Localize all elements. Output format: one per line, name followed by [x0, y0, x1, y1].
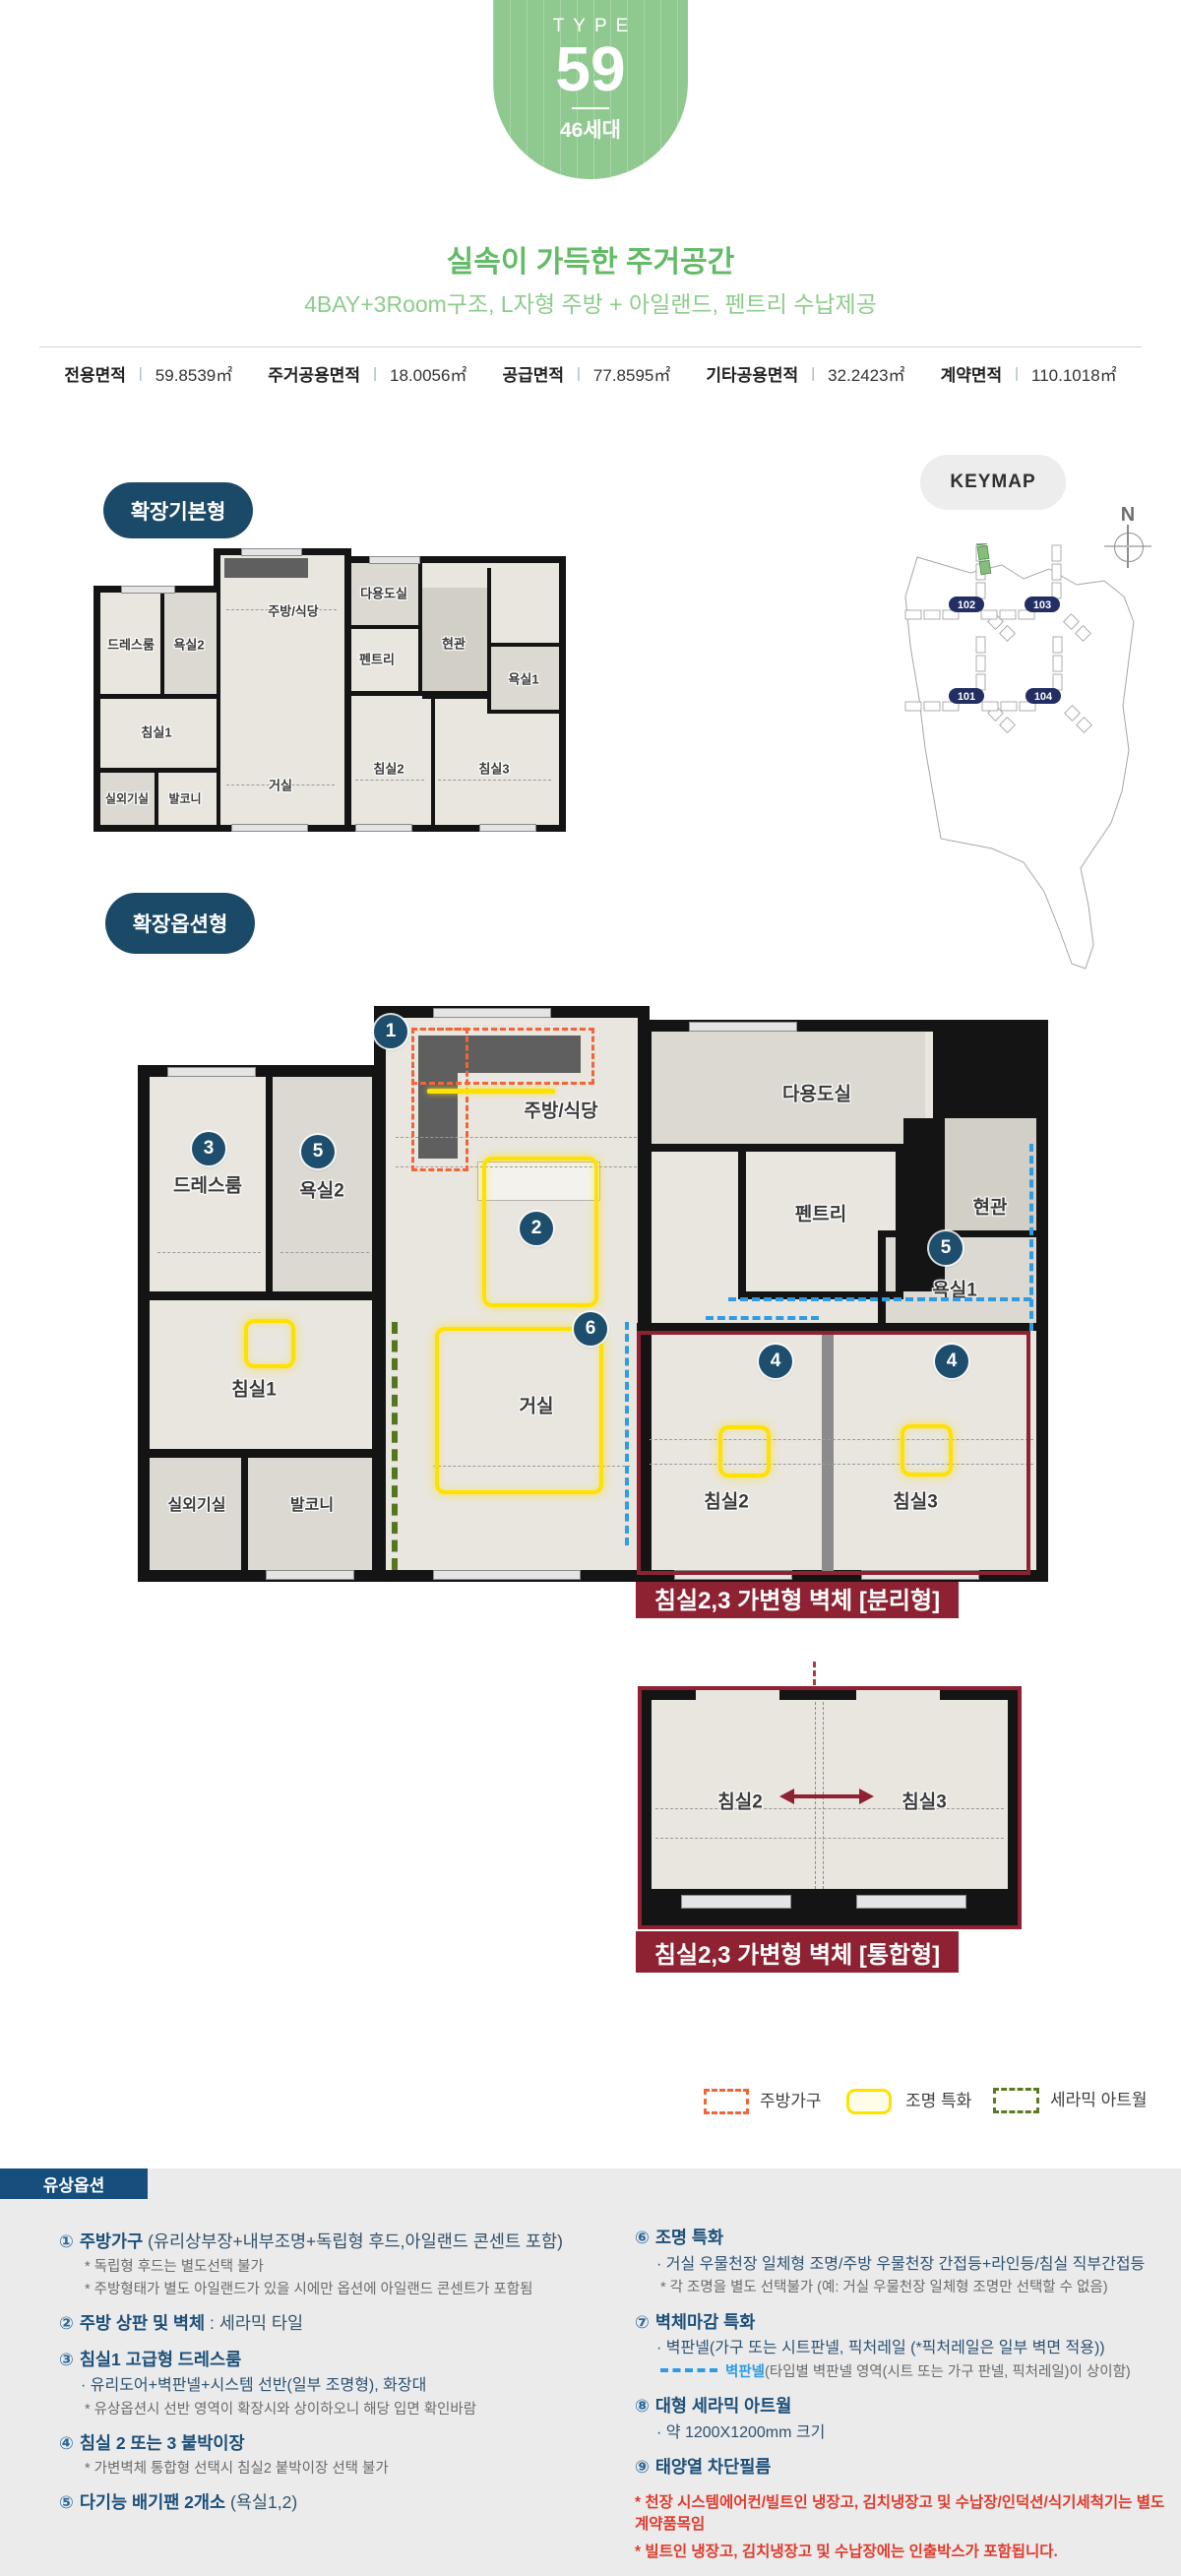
- building: [1001, 702, 1017, 711]
- building: [975, 543, 987, 545]
- wall: [652, 1144, 933, 1152]
- building: [924, 702, 940, 711]
- wall: [937, 1114, 945, 1237]
- block-pill-label: 103: [1033, 599, 1051, 611]
- room-label-bed2: 침실2: [717, 1788, 763, 1814]
- option-item-title: 침실1 고급형 드레스룸: [80, 2350, 241, 2369]
- wall: [160, 593, 164, 696]
- area-value: 59.8539㎡: [155, 361, 232, 386]
- area-value: 110.1018㎡: [1031, 361, 1117, 386]
- floor: [856, 1690, 940, 1702]
- area-label: 공급면적: [502, 361, 564, 386]
- marker-5: 5: [929, 1231, 963, 1265]
- option-item: ③침실1 고급형 드레스룸 · 유리도어+벽판넬+시스템 선반(일부 조명형),…: [59, 2349, 610, 2420]
- buildings-layer: [905, 543, 1091, 732]
- building: [1000, 626, 1016, 642]
- wall: [738, 1152, 746, 1299]
- divider-line: [39, 346, 1142, 347]
- option-item-suffix: : 세라믹 타일: [210, 2313, 303, 2333]
- window: [479, 824, 536, 832]
- wall: [155, 773, 158, 825]
- option-item-suffix: (유리상부장+내부조명+독립형 후드,아일랜드 콘센트 포함): [148, 2231, 563, 2251]
- option-item-heading: ①주방가구 (유리상부장+내부조명+독립형 후드,아일랜드 콘센트 포함): [59, 2230, 610, 2254]
- area-info-row: 전용면적 | 59.8539㎡ 주거공용면적 | 18.0056㎡ 공급면적 |…: [0, 361, 1181, 386]
- merge-arrow-head: [779, 1789, 794, 1804]
- merge-arrow-icon: [777, 1785, 876, 1808]
- legend-kitchen-furniture-swatch: [704, 2089, 749, 2114]
- site-map-svg: 102 103 101 104: [876, 543, 1171, 976]
- variable-wall-outline: [637, 1331, 1030, 1575]
- wall-panel-line: [1029, 1144, 1033, 1331]
- marker-2: 2: [520, 1212, 553, 1245]
- type-divider: [572, 107, 609, 109]
- block-pill-103: 103: [1025, 597, 1060, 612]
- option-item-number: ②: [59, 2313, 74, 2333]
- room-label-outdoor-unit: 실외기실: [105, 790, 149, 807]
- building: [981, 610, 997, 619]
- window: [167, 1067, 256, 1077]
- room-label-pantry: 펜트리: [359, 650, 395, 668]
- building: [1064, 614, 1080, 630]
- room-label-bed1: 침실1: [231, 1375, 277, 1402]
- variable-wall-caption-separate: 침실2,3 가변형 벽체 [분리형]: [636, 1577, 959, 1618]
- building: [924, 610, 940, 619]
- wall: [487, 568, 491, 714]
- window: [231, 824, 308, 832]
- contract-red-note: * 빌트인 냉장고, 김치냉장고 및 수납장에는 인출박스가 포함됩니다.: [635, 2542, 1166, 2563]
- room-label-outdoor-unit: 실외기실: [168, 1491, 226, 1515]
- wall-panel-label: 벽판넬: [725, 2364, 765, 2380]
- page-subtitle: 4BAY+3Room구조, L자형 주방 + 아일랜드, 펜트리 수납제공: [0, 285, 1181, 319]
- option-item-heading: ⑧대형 세라믹 아트월: [635, 2395, 1166, 2419]
- option-item-bullet: · 벽판넬(가구 또는 시트판넬, 픽처레일 (*픽처레일은 일부 벽면 적용)…: [656, 2338, 1166, 2359]
- ceiling-dash-line: [157, 1252, 261, 1253]
- room-label-kitchen: 주방/식당: [524, 1097, 597, 1123]
- option-item-heading: ⑦벽체마감 특화: [635, 2311, 1166, 2335]
- option-item-note: * 각 조명을 별도 선택불가 (예: 거실 우물천장 일체형 조명만 선택할 …: [660, 2278, 1166, 2297]
- option-item-suffix: (욕실1,2): [230, 2492, 297, 2512]
- option-item: ④침실 2 또는 3 붙박이장 * 가변벽체 통합형 선택시 침실2 붙박이장 …: [59, 2432, 610, 2479]
- building: [1052, 583, 1061, 598]
- wall: [491, 710, 559, 714]
- window: [369, 556, 420, 564]
- option-item-bullet: · 거실 우물천장 일체형 조명/주방 우물천장 간접등+라인등/침실 직부간접…: [656, 2254, 1166, 2276]
- area-value: 32.2423㎡: [828, 361, 904, 386]
- option-item-bullet: · 약 1200X1200mm 크기: [656, 2422, 1166, 2444]
- marker-6: 6: [574, 1312, 607, 1346]
- option-item-title: 침실 2 또는 3 붙박이장: [80, 2433, 245, 2453]
- block-pill-102: 102: [949, 597, 984, 612]
- building: [905, 610, 921, 619]
- building: [1077, 718, 1092, 733]
- building: [1052, 545, 1061, 561]
- window: [856, 1895, 966, 1909]
- legend-lighting-label: 조명 특화: [905, 2089, 971, 2114]
- option-item-title: 다기능 배기팬 2개소: [80, 2492, 225, 2512]
- wall: [100, 694, 217, 699]
- area-separator: |: [1015, 365, 1019, 382]
- building: [1053, 674, 1062, 690]
- wall-panel-line: [706, 1316, 819, 1320]
- building: [1076, 626, 1091, 642]
- area-item: 전용면적 | 59.8539㎡: [64, 361, 232, 386]
- ceiling-dash-line: [655, 1838, 1004, 1839]
- paid-options-left-column: ①주방가구 (유리상부장+내부조명+독립형 후드,아일랜드 콘센트 포함) * …: [59, 2230, 610, 2528]
- option-item: ⑨태양열 차단필름: [635, 2456, 1166, 2480]
- wall: [878, 1230, 886, 1329]
- page-title: 실속이 가득한 주거공간: [0, 237, 1181, 281]
- room-label-utility: 다용도실: [360, 584, 407, 602]
- site-keymap: 102 103 101 104: [876, 543, 1171, 976]
- paid-options-title: 유상옵션: [0, 2168, 148, 2199]
- type-units: 46세대: [493, 114, 688, 144]
- option-item-number: ⑨: [635, 2457, 650, 2477]
- option-item-number: ④: [59, 2433, 74, 2453]
- room-label-balcony: 발코니: [168, 790, 201, 807]
- building: [982, 702, 998, 711]
- wall: [418, 563, 422, 695]
- ceiling-dash-line: [438, 780, 551, 781]
- wall: [431, 699, 435, 825]
- merge-arrow-head: [859, 1789, 874, 1804]
- room-label-balcony: 발코니: [290, 1491, 334, 1515]
- option-item-title: 대형 세라믹 아트월: [655, 2396, 792, 2416]
- window: [241, 548, 302, 556]
- window: [681, 1895, 791, 1909]
- marker-5: 5: [301, 1135, 335, 1168]
- option-item-heading: ⑤다기능 배기팬 2개소 (욕실1,2): [59, 2491, 610, 2515]
- wall-panel-dash-icon: [660, 2368, 717, 2372]
- kitchen-counter: [224, 558, 308, 578]
- building: [976, 637, 985, 653]
- option-item-title: 주방 상판 및 벽체: [80, 2313, 205, 2333]
- option-item-note: * 주방형태가 별도 아일랜드가 있을 시에만 옵션에 아일랜드 콘센트가 포함…: [85, 2280, 610, 2299]
- window: [355, 824, 412, 832]
- window: [121, 586, 175, 594]
- option-item-number: ①: [59, 2231, 74, 2251]
- option-item-number: ③: [59, 2350, 74, 2369]
- option-item-heading: ④침실 2 또는 3 붙박이장: [59, 2432, 610, 2456]
- option-item-panel-note: 벽판넬(타입별 벽판넬 영역(시트 또는 가구 판넬, 픽처레일)이 상이함): [660, 2362, 1166, 2382]
- room-label-bath1: 욕실1: [508, 669, 538, 688]
- room-label-dress: 드레스룸: [173, 1171, 242, 1198]
- area-separator: |: [373, 365, 377, 382]
- option-item-heading: ②주방 상판 및 벽체 : 세라믹 타일: [59, 2312, 610, 2336]
- building: [905, 702, 921, 711]
- ceiling-dash-line: [355, 780, 424, 781]
- legend-ceramic-label: 세라믹 아트월: [1050, 2088, 1148, 2113]
- wall-panel-line: [728, 1297, 1031, 1301]
- option-item-title: 벽체마감 특화: [655, 2312, 755, 2332]
- option-item-note: * 가변벽체 통합형 선택시 침실2 붙박이장 선택 불가: [85, 2459, 610, 2479]
- option-item-heading: ⑨태양열 차단필름: [635, 2456, 1166, 2480]
- type-badge: TYPE 59 46세대: [493, 0, 688, 179]
- block-pill-label: 104: [1034, 691, 1053, 703]
- wall: [896, 1152, 903, 1299]
- wall: [933, 1032, 1036, 1118]
- option-item-note: * 유상옵션시 선반 영역이 확장시와 상이하오니 해당 입면 확인바람: [85, 2400, 610, 2419]
- lighting-strip: [427, 1089, 555, 1094]
- ceiling-dash-line: [655, 1808, 1004, 1809]
- room-label-bath2: 욕실2: [173, 635, 204, 654]
- option-item: ⑧대형 세라믹 아트월 · 약 1200X1200mm 크기: [635, 2395, 1166, 2443]
- window: [433, 1008, 551, 1018]
- option-item-title: 태양열 차단필름: [655, 2457, 772, 2477]
- marker-3: 3: [192, 1132, 225, 1165]
- building: [977, 545, 989, 559]
- option-item: ②주방 상판 및 벽체 : 세라믹 타일: [59, 2312, 610, 2336]
- option-item-heading: ⑥조명 특화: [635, 2227, 1166, 2250]
- area-value: 77.8595㎡: [593, 361, 670, 386]
- area-item: 계약면적 | 110.1018㎡: [941, 361, 1117, 386]
- legend-ceramic-swatch: [993, 2088, 1039, 2113]
- wall: [150, 1449, 372, 1458]
- wall-panel-line: [625, 1322, 629, 1545]
- area-separator: |: [139, 365, 143, 382]
- option-item: ①주방가구 (유리상부장+내부조명+독립형 후드,아일랜드 콘센트 포함) * …: [59, 2230, 610, 2299]
- building: [976, 583, 985, 598]
- building: [1053, 637, 1062, 653]
- area-item: 기타공용면적 | 32.2423㎡: [706, 361, 904, 386]
- room-label-pantry: 펜트리: [795, 1200, 846, 1226]
- area-label: 전용면적: [64, 361, 126, 386]
- option-item: ⑦벽체마감 특화 · 벽판넬(가구 또는 시트판넬, 픽처레일 (*픽처레일은 …: [635, 2311, 1166, 2383]
- window: [689, 1022, 797, 1032]
- area-label: 주거공용면적: [268, 361, 360, 386]
- option-item-number: ⑥: [635, 2228, 650, 2247]
- floor: [696, 1690, 779, 1702]
- block-pill-label: 101: [958, 691, 975, 703]
- kitchen-furniture-outline: [411, 1028, 468, 1171]
- block-pill-104: 104: [1026, 688, 1061, 704]
- room-label-living: 거실: [520, 1392, 554, 1418]
- building: [1065, 706, 1081, 722]
- building: [1053, 656, 1062, 671]
- ceramic-artwall-line: [392, 1322, 398, 1570]
- wall: [491, 643, 559, 647]
- building: [976, 656, 985, 671]
- room-label-utility: 다용도실: [782, 1080, 851, 1106]
- wall: [351, 625, 418, 629]
- wall: [100, 768, 217, 773]
- room-label-bath2: 욕실2: [299, 1176, 344, 1203]
- contract-red-note: * 천장 시스템에어컨/빌트인 냉장고, 김치냉장고 및 수납장/인덕션/식기세…: [635, 2492, 1166, 2537]
- option-item-number: ⑤: [59, 2492, 74, 2512]
- wall: [266, 1077, 273, 1291]
- wall: [637, 1323, 1036, 1331]
- option-item-title: 주방가구: [80, 2231, 143, 2251]
- option-plan-badge: 확장옵션형: [105, 893, 255, 954]
- basic-floor-plan: 드레스룸 욕실2 주방/식당 다용도실 펜트리 현관 욕실1 침실1 거실 침실…: [93, 548, 566, 832]
- option-item-number: ⑦: [635, 2312, 650, 2332]
- option-item: ⑥조명 특화 · 거실 우물천장 일체형 조명/주방 우물천장 간접등+라인등/…: [635, 2227, 1166, 2298]
- room-label-dress: 드레스룸: [107, 635, 155, 654]
- wall-panel-note: (타입별 벽판넬 영역(시트 또는 가구 판넬, 픽처레일)이 상이함): [765, 2364, 1131, 2380]
- area-separator: |: [811, 365, 815, 382]
- room-label-entrance: 현관: [973, 1193, 1008, 1220]
- room-label-bed2: 침실2: [373, 759, 404, 778]
- area-label: 계약면적: [941, 361, 1003, 386]
- building: [1000, 610, 1016, 619]
- type-number: 59: [493, 37, 688, 101]
- north-compass-label: N: [1110, 504, 1146, 527]
- merged-wall-tick: [813, 1662, 816, 1685]
- building: [1000, 718, 1016, 733]
- wall: [150, 1291, 372, 1300]
- wall: [241, 1458, 248, 1570]
- area-separator: |: [577, 365, 581, 382]
- room-label-entrance: 현관: [442, 634, 466, 653]
- keymap-pill: KEYMAP: [920, 455, 1066, 510]
- window: [266, 1570, 354, 1580]
- marker-1: 1: [374, 1015, 407, 1048]
- option-item-note: * 독립형 후드는 별도선택 불가: [85, 2257, 610, 2277]
- option-item: ⑤다기능 배기팬 2개소 (욕실1,2): [59, 2491, 610, 2515]
- option-item-heading: ③침실1 고급형 드레스룸: [59, 2349, 610, 2372]
- building: [979, 560, 991, 574]
- room-label-kitchen: 주방/식당: [268, 601, 318, 620]
- room-label-bed3: 침실3: [478, 759, 509, 778]
- room-label-living: 거실: [269, 776, 292, 794]
- ceiling-dash-line: [280, 1252, 369, 1253]
- area-item: 주거공용면적 | 18.0056㎡: [268, 361, 466, 386]
- lighting-zone-bed1: [244, 1319, 295, 1368]
- area-value: 18.0056㎡: [390, 361, 466, 386]
- room-label-bed1: 침실1: [141, 723, 171, 741]
- block-pill-101: 101: [949, 688, 984, 704]
- option-item-title: 조명 특화: [655, 2228, 723, 2247]
- window: [433, 1570, 581, 1580]
- legend-lighting-swatch: [846, 2089, 892, 2114]
- variable-wall-caption-merged: 침실2,3 가변형 벽체 [통합형]: [636, 1931, 959, 1973]
- paid-options-right-column: ⑥조명 특화 · 거실 우물천장 일체형 조명/주방 우물천장 간접등+라인등/…: [635, 2227, 1166, 2563]
- building: [976, 674, 985, 690]
- basic-plan-badge: 확장기본형: [103, 482, 253, 538]
- block-pill-label: 102: [958, 599, 975, 611]
- option-item-number: ⑧: [635, 2396, 650, 2416]
- option-floor-plan: 1 2 3 5 5 6 4 4 드레스룸 욕실2 주방/식당 다용도실 펜트리 …: [138, 1006, 1048, 1582]
- area-item: 공급면적 | 77.8595㎡: [502, 361, 670, 386]
- option-item-bullet: · 유리도어+벽판넬+시스템 선반(일부 조명형), 화장대: [81, 2375, 610, 2397]
- legend-kitchen-furniture-label: 주방가구: [760, 2089, 822, 2114]
- room-label-bed3: 침실3: [901, 1788, 947, 1814]
- area-label: 기타공용면적: [706, 361, 798, 386]
- building: [1052, 564, 1061, 580]
